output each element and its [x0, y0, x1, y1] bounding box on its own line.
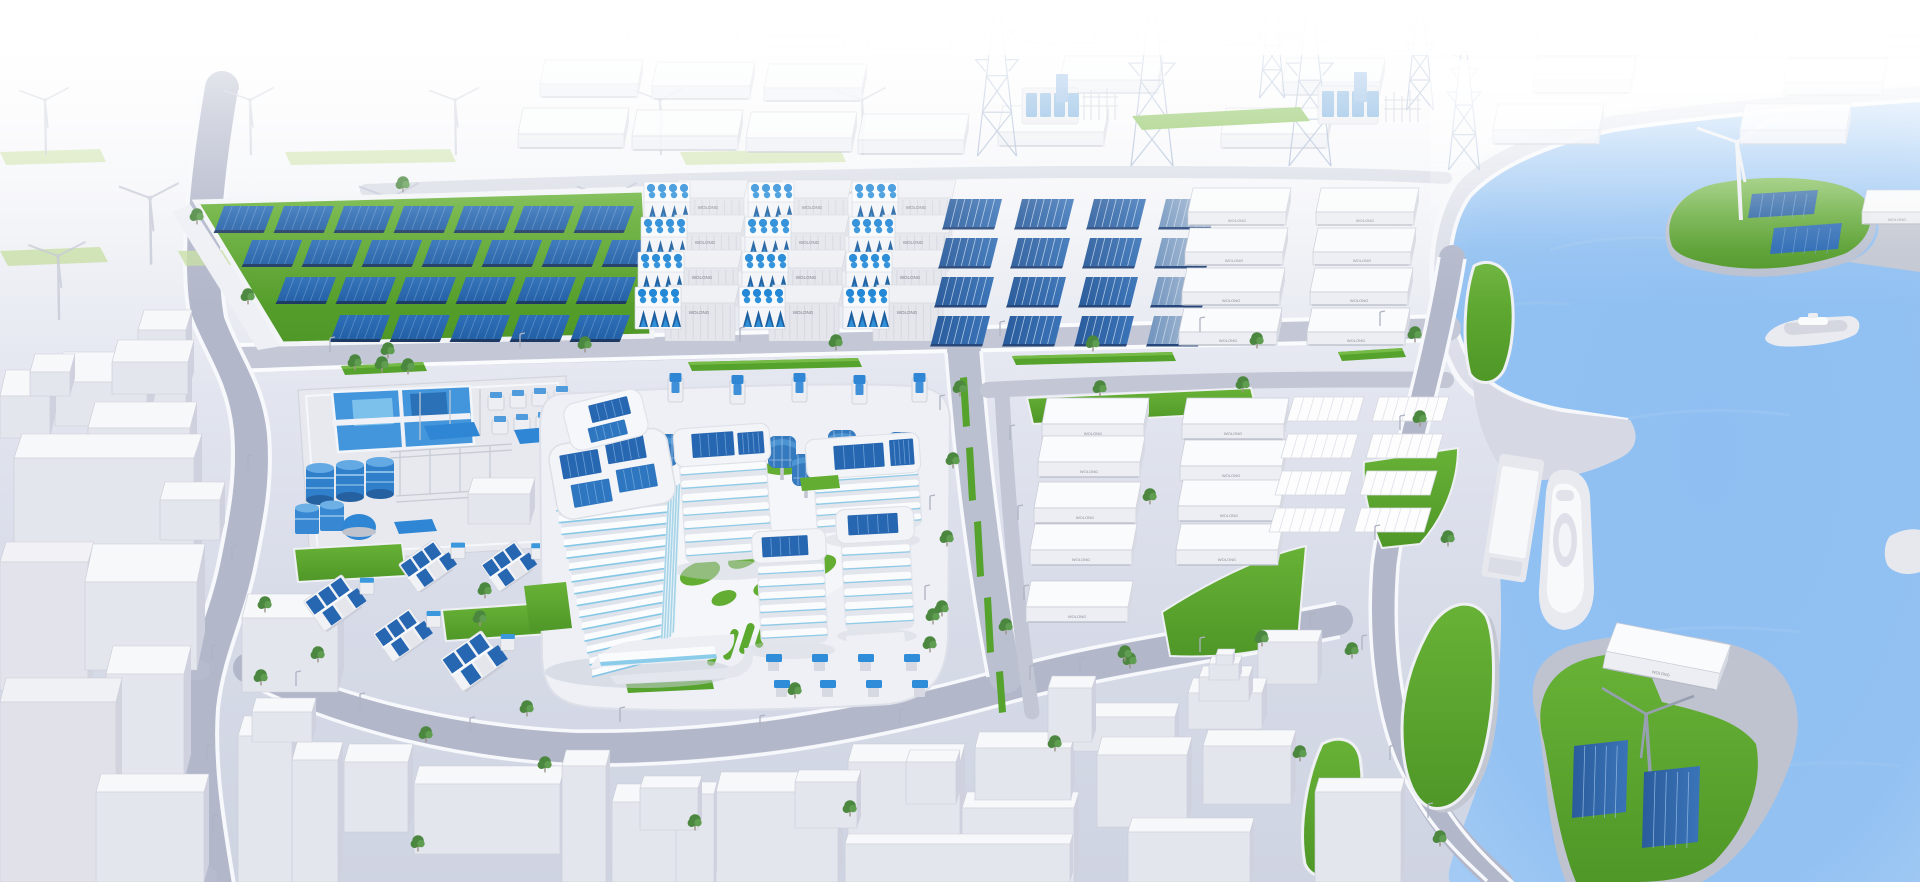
- svg-text:WOLONG: WOLONG: [1347, 338, 1365, 343]
- svg-text:WOLONG: WOLONG: [1084, 431, 1102, 436]
- svg-text:WOLONG: WOLONG: [1224, 431, 1242, 436]
- svg-text:WOLONG: WOLONG: [1072, 557, 1090, 562]
- svg-text:WOLONG: WOLONG: [689, 310, 710, 315]
- svg-text:WOLONG: WOLONG: [1218, 557, 1236, 562]
- svg-text:WOLONG: WOLONG: [1222, 473, 1240, 478]
- svg-text:WOLONG: WOLONG: [1080, 469, 1098, 474]
- svg-text:WOLONG: WOLONG: [1076, 515, 1094, 520]
- svg-text:WOLONG: WOLONG: [897, 310, 918, 315]
- svg-text:WOLONG: WOLONG: [1068, 614, 1086, 619]
- svg-text:WOLONG: WOLONG: [793, 310, 814, 315]
- svg-text:WOLONG: WOLONG: [1219, 338, 1237, 343]
- svg-text:WOLONG: WOLONG: [1220, 513, 1238, 518]
